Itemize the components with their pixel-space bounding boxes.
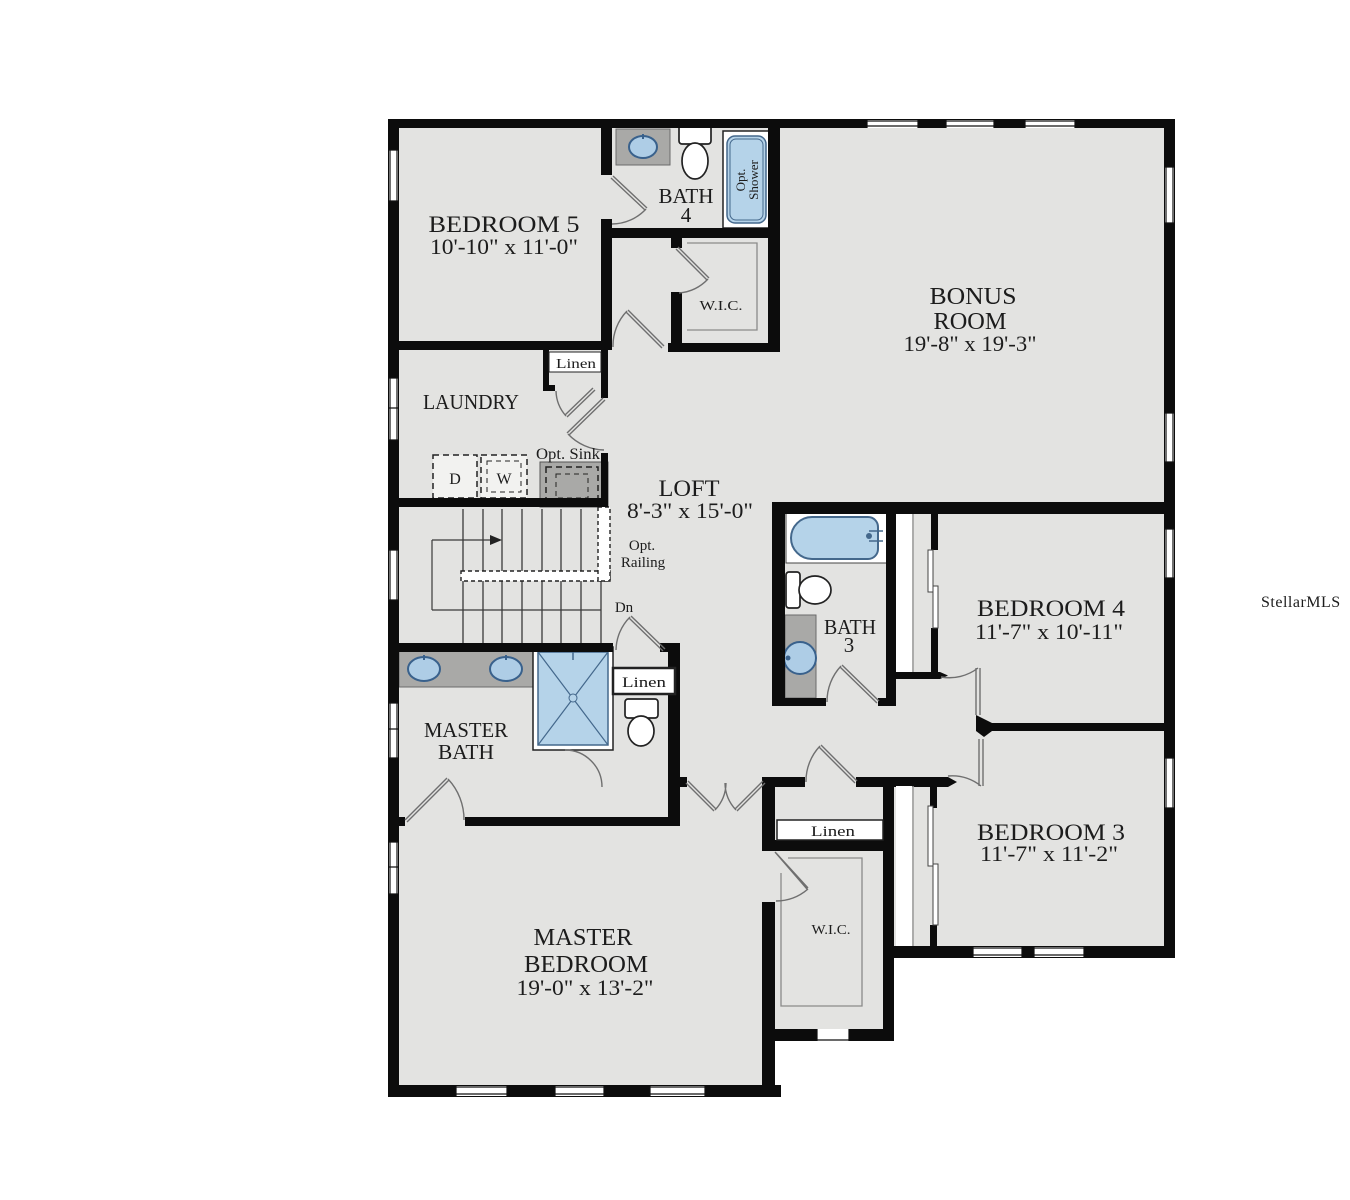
svg-text:Shower: Shower	[746, 159, 761, 199]
svg-text:8'-3" x 15'-0": 8'-3" x 15'-0"	[627, 498, 753, 523]
svg-text:11'-7" x 10'-11": 11'-7" x 10'-11"	[975, 619, 1123, 644]
svg-text:BONUS: BONUS	[930, 284, 1017, 310]
svg-text:W.I.C.: W.I.C.	[700, 299, 743, 314]
svg-text:Opt.: Opt.	[629, 538, 655, 554]
svg-text:Linen: Linen	[556, 357, 596, 372]
svg-text:W: W	[496, 471, 512, 488]
svg-text:11'-7" x 11'-2": 11'-7" x 11'-2"	[980, 841, 1118, 866]
svg-text:BEDROOM 4: BEDROOM 4	[977, 596, 1126, 621]
svg-text:19'-0" x 13'-2": 19'-0" x 13'-2"	[517, 975, 654, 1000]
svg-text:W.I.C.: W.I.C.	[812, 923, 851, 938]
svg-text:LAUNDRY: LAUNDRY	[423, 390, 519, 414]
svg-text:D: D	[449, 471, 461, 488]
svg-text:MASTER: MASTER	[424, 718, 508, 742]
svg-text:10'-10" x 11'-0": 10'-10" x 11'-0"	[430, 234, 578, 259]
svg-text:Railing: Railing	[621, 555, 666, 571]
svg-text:4: 4	[681, 203, 692, 227]
svg-text:StellarMLS: StellarMLS	[1261, 594, 1341, 611]
svg-text:Linen: Linen	[811, 824, 856, 840]
svg-text:BATH: BATH	[438, 740, 494, 764]
svg-text:Dn: Dn	[615, 600, 634, 616]
svg-text:MASTER: MASTER	[534, 925, 633, 951]
svg-text:Linen: Linen	[622, 675, 667, 691]
svg-text:Opt. Sink: Opt. Sink	[536, 446, 600, 463]
svg-text:3: 3	[844, 633, 855, 657]
svg-text:19'-8" x 19'-3": 19'-8" x 19'-3"	[904, 331, 1037, 356]
